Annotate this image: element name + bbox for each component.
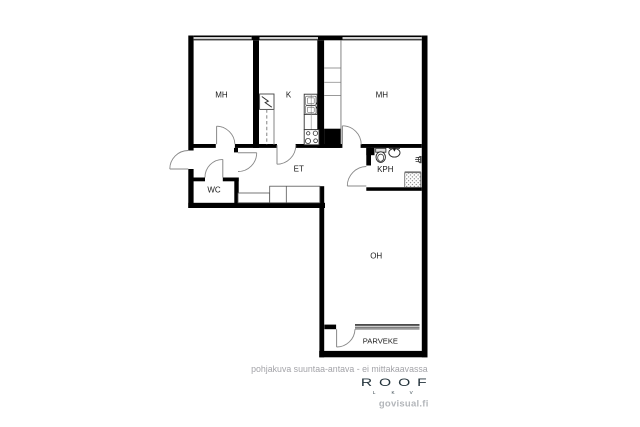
svg-text:govisual.fi: govisual.fi (379, 399, 429, 410)
svg-text:K: K (391, 390, 395, 395)
svg-text:PARVEKE: PARVEKE (363, 337, 398, 346)
svg-text:MH: MH (376, 90, 389, 99)
svg-text:KPH: KPH (377, 165, 394, 174)
svg-text:pohjakuva suuntaa-antava - ei: pohjakuva suuntaa-antava - ei mittakaava… (251, 364, 428, 374)
svg-text:WC: WC (207, 186, 221, 195)
svg-text:L: L (373, 390, 376, 395)
svg-text:V: V (410, 390, 414, 395)
svg-text:OH: OH (370, 251, 382, 260)
svg-text:ROOF: ROOF (361, 376, 434, 388)
svg-text:MH: MH (215, 90, 228, 99)
svg-text:ET: ET (294, 165, 304, 174)
svg-text:K: K (286, 91, 292, 100)
